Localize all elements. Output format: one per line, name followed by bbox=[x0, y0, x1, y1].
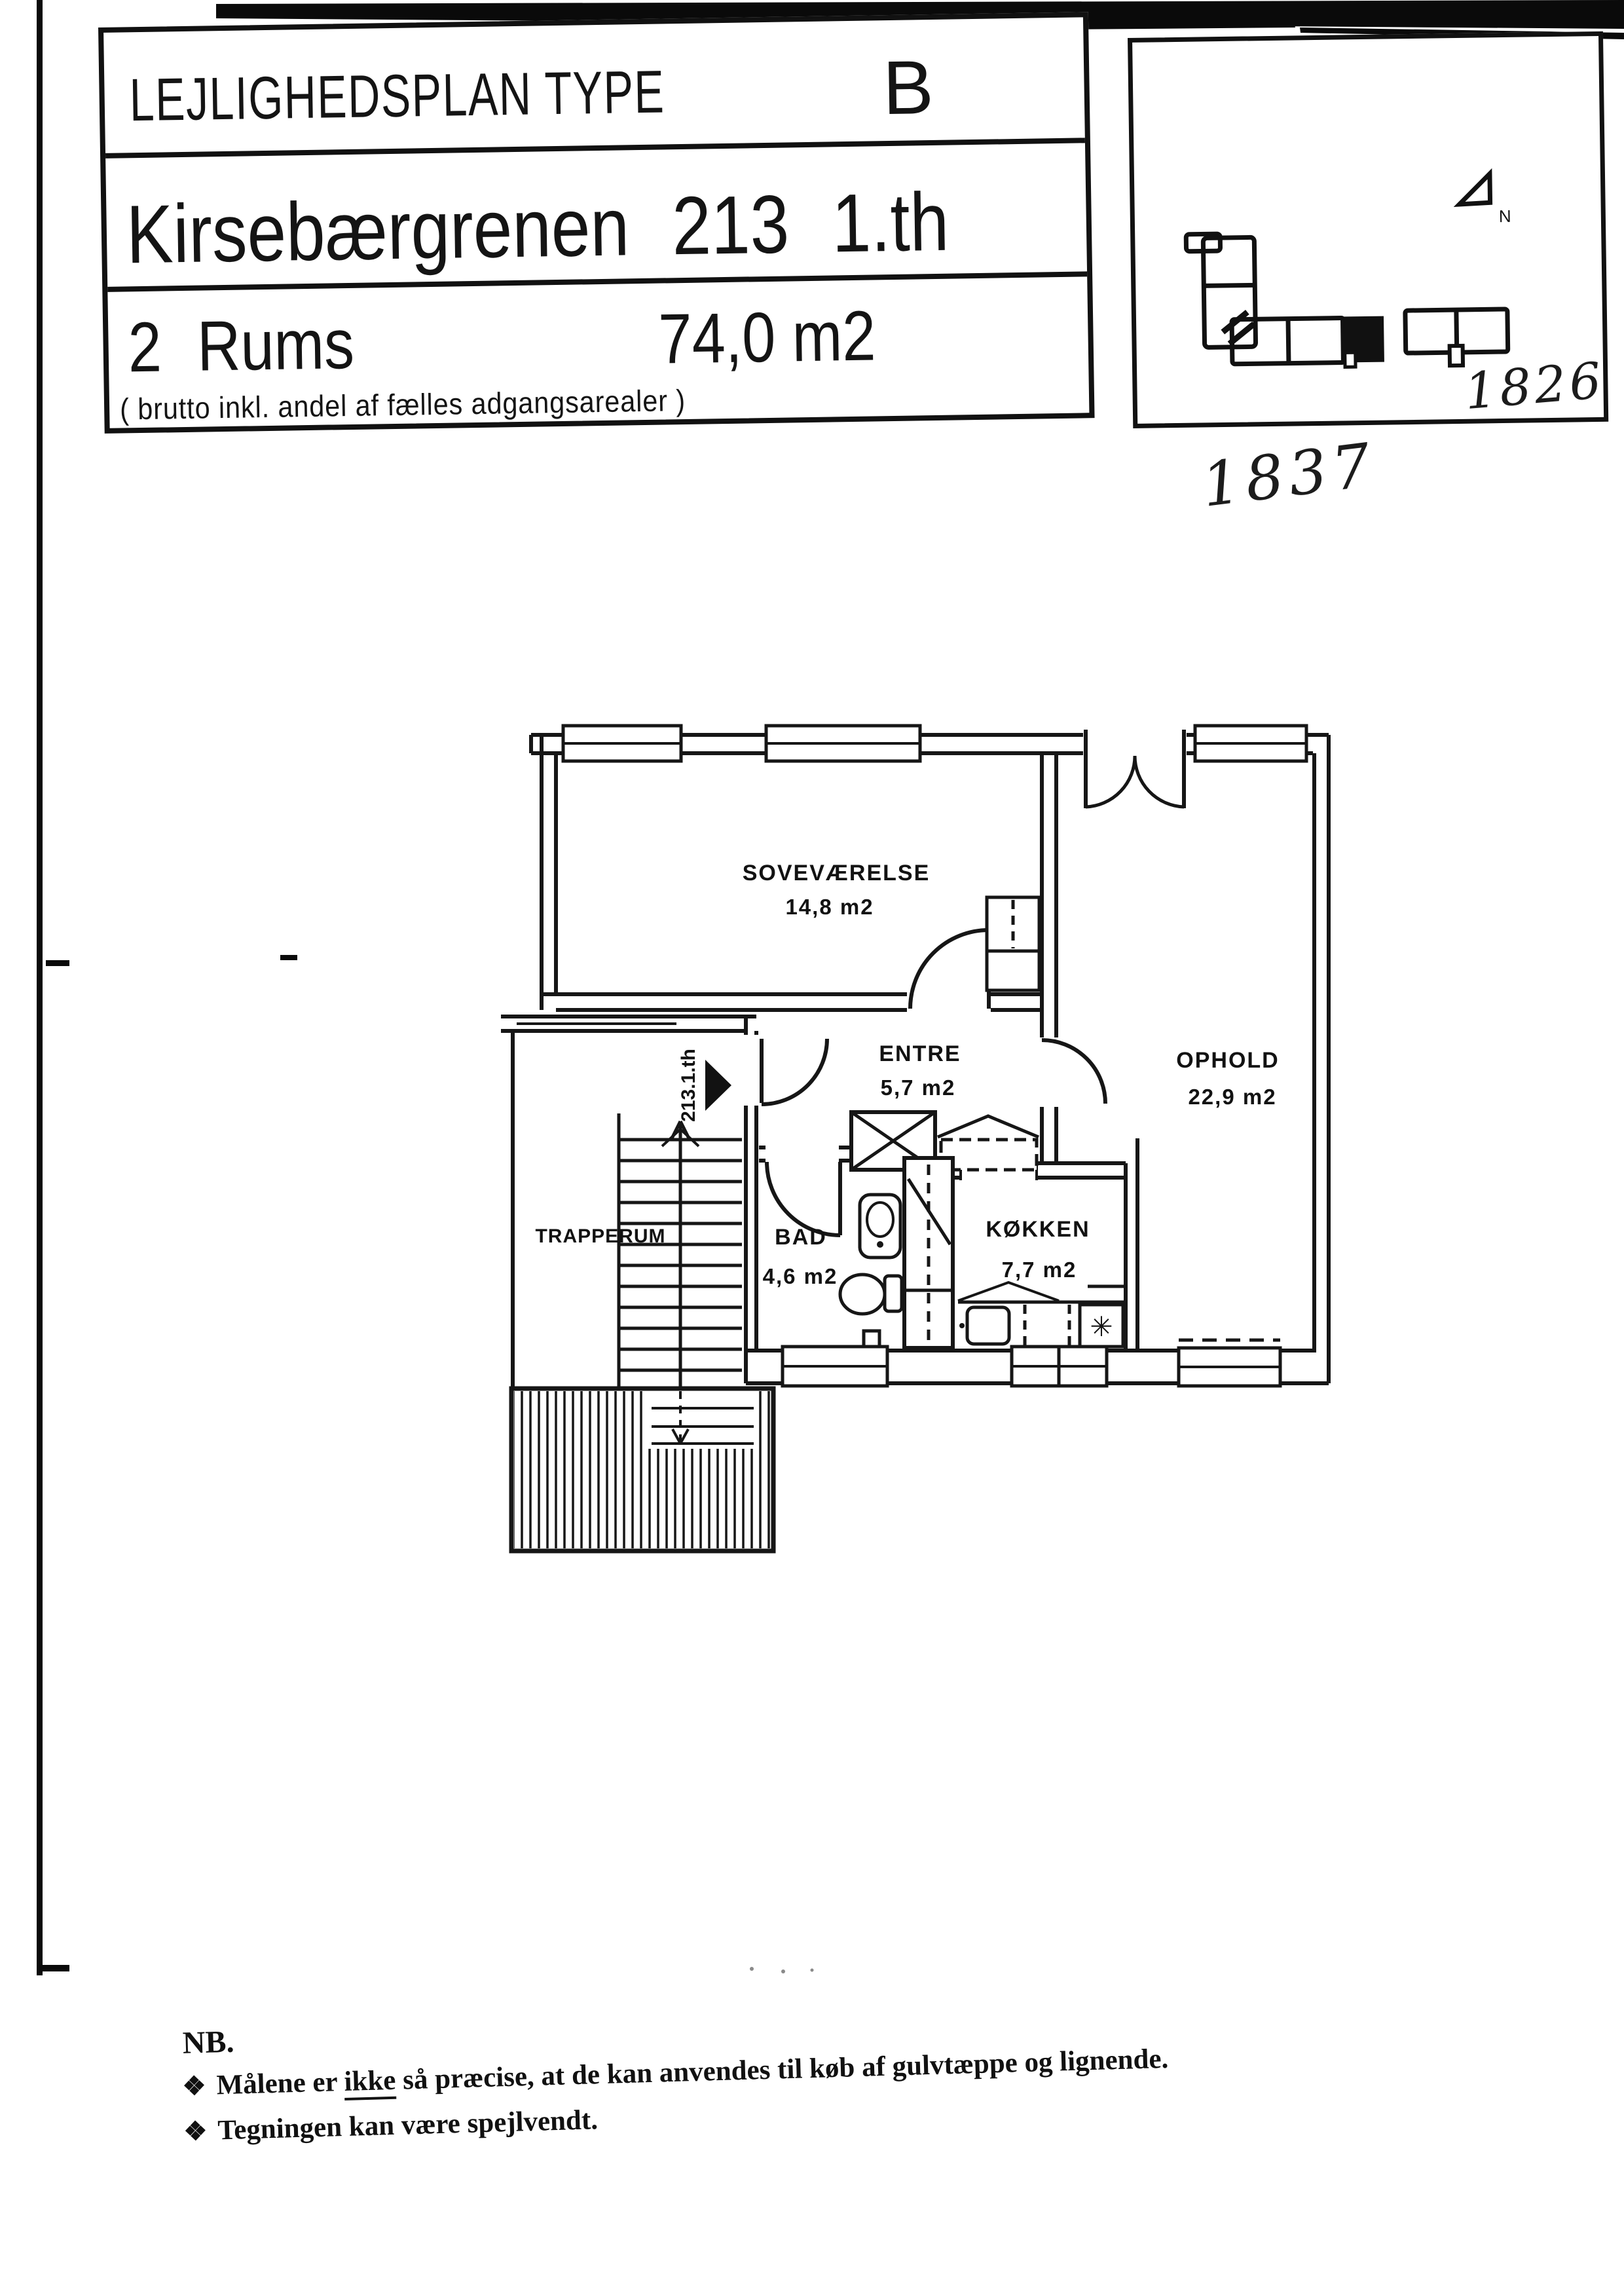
site-location-box: N 1826 bbox=[1128, 31, 1608, 428]
room-area-ophold: 22,9 m2 bbox=[1188, 1085, 1276, 1109]
terrace bbox=[511, 1389, 773, 1551]
room-name-koekken: KØKKEN bbox=[986, 1217, 1090, 1242]
address-text: Kirsebærgrenen 213 1.th bbox=[126, 174, 950, 282]
area-note: ( brutto inkl. andel af fælles adgangsar… bbox=[120, 382, 686, 427]
room-name-sovevaerelse: SOVEVÆRELSE bbox=[743, 861, 931, 886]
room-name-entre: ENTRE bbox=[879, 1041, 961, 1066]
title-block: LEJLIGHEDSPLAN TYPE B Kirsebærgrenen 213… bbox=[98, 12, 1095, 434]
note-text: Tegningen kan være spejlvendt. bbox=[217, 2104, 599, 2146]
note-text-prefix: Målene er bbox=[216, 2066, 344, 2100]
gross-area: 74,0 m2 bbox=[658, 294, 877, 379]
bathroom-fixtures bbox=[840, 1195, 902, 1347]
room-name-bad: BAD bbox=[775, 1225, 827, 1250]
title-row-address: Kirsebærgrenen 213 1.th bbox=[105, 143, 1087, 291]
rooms-count: 2 Rums bbox=[128, 303, 355, 388]
room-area-sovevaerelse: 14,8 m2 bbox=[785, 895, 874, 919]
diamond-bullet-icon: ❖ bbox=[183, 2115, 218, 2146]
room-name-ophold: OPHOLD bbox=[1176, 1048, 1279, 1073]
handwritten-number: 1826 bbox=[1462, 351, 1606, 421]
north-arrow-icon bbox=[1459, 174, 1490, 204]
unit-label: 213.1.th bbox=[678, 1049, 699, 1122]
toilet-icon bbox=[840, 1275, 902, 1314]
room-area-entre: 5,7 m2 bbox=[881, 1075, 956, 1100]
floor-plan-drawing: ✳ 213.1.th SOVEVÆRELSE 14,8 m2 bbox=[501, 720, 1352, 1559]
plan-type-value: B bbox=[882, 43, 934, 132]
kitchen-sink-icon bbox=[967, 1307, 1009, 1344]
building-entry-notch bbox=[1450, 346, 1463, 365]
title-row-type: LEJLIGHEDSPLAN TYPE B bbox=[103, 17, 1085, 158]
cabinet-peak bbox=[938, 1116, 1039, 1137]
plan-type-label: LEJLIGHEDSPLAN TYPE bbox=[129, 58, 665, 135]
scanned-floor-plan-page: LEJLIGHEDSPLAN TYPE B Kirsebærgrenen 213… bbox=[0, 0, 1624, 2295]
wardrobe-column bbox=[904, 1158, 953, 1348]
bedroom-closet bbox=[987, 897, 1039, 990]
diamond-bullet-icon: ❖ bbox=[182, 2070, 217, 2101]
room-area-bad: 4,6 m2 bbox=[763, 1264, 838, 1288]
title-row-size: 2 Rums 74,0 m2 ( brutto inkl. andel af f… bbox=[107, 276, 1089, 428]
stove-symbol: ✳ bbox=[1090, 1311, 1113, 1342]
unit-entry-notch bbox=[1345, 352, 1356, 367]
door-openings bbox=[741, 730, 1187, 1165]
north-label: N bbox=[1499, 206, 1511, 226]
kitchen-fixtures: ✳ bbox=[958, 1282, 1126, 1348]
floor-drain-icon bbox=[864, 1331, 879, 1347]
room-name-trapperum: TRAPPERUM bbox=[535, 1225, 665, 1247]
entrance-arrow-icon bbox=[705, 1060, 731, 1111]
entre-cabinet bbox=[941, 1140, 1037, 1170]
stairs bbox=[619, 1113, 742, 1389]
note-text-underlined: ikke bbox=[344, 2065, 396, 2100]
room-area-koekken: 7,7 m2 bbox=[1002, 1258, 1077, 1282]
